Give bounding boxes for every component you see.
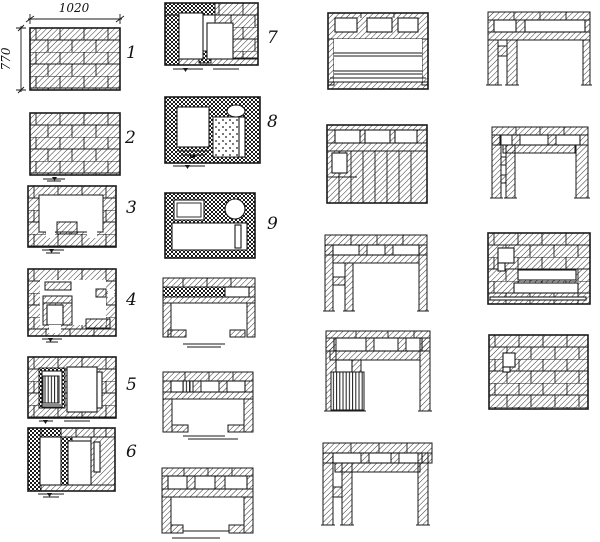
section-diagram-14 xyxy=(327,125,427,203)
plan-course-7 xyxy=(165,3,258,72)
course-label-2: 2 xyxy=(124,128,136,148)
plan-course-4 xyxy=(28,269,116,342)
plan-course-upper-20 xyxy=(488,233,590,304)
section-diagram-12 xyxy=(162,468,253,538)
section-diagram-17 xyxy=(321,443,432,525)
course-label-3: 3 xyxy=(126,198,137,218)
plan-course-3 xyxy=(28,186,116,253)
plan-course-6 xyxy=(28,428,115,497)
diagram-canvas: 1020 770 xyxy=(0,0,600,542)
section-diagram-13 xyxy=(328,13,428,89)
dimension-height: 770 xyxy=(0,25,26,93)
dimension-width: 1020 xyxy=(26,1,124,24)
plan-course-top-21 xyxy=(489,335,588,409)
plan-course-2 xyxy=(30,113,120,181)
section-diagram-19 xyxy=(490,127,590,198)
stove-masonry-courses-sheet: 1020 770 xyxy=(0,0,600,542)
course-label-5: 5 xyxy=(126,375,137,395)
section-diagram-11 xyxy=(163,372,253,439)
section-diagram-18 xyxy=(486,12,592,85)
course-label-7: 7 xyxy=(267,28,278,48)
dimension-width-label: 1020 xyxy=(59,1,90,15)
course-label-6: 6 xyxy=(126,442,137,462)
dimension-height-label: 770 xyxy=(0,47,13,70)
section-diagram-15 xyxy=(323,235,429,311)
section-diagram-16 xyxy=(324,331,432,411)
course-label-9: 9 xyxy=(267,214,278,234)
plan-course-1 xyxy=(30,28,120,90)
plan-course-9 xyxy=(165,193,255,258)
course-label-4: 4 xyxy=(125,290,137,310)
course-label-8: 8 xyxy=(267,112,278,132)
course-label-1: 1 xyxy=(126,43,137,63)
plan-course-8 xyxy=(165,97,260,169)
section-diagram-10 xyxy=(163,278,255,347)
plan-course-5 xyxy=(28,357,116,424)
